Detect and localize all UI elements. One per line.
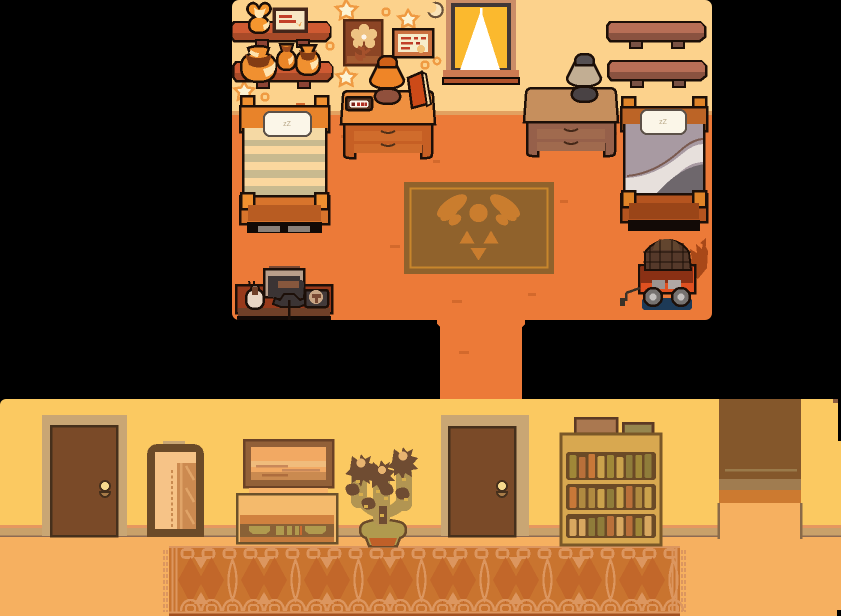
svg-text:zZ: zZ xyxy=(659,119,668,126)
svg-text:zZ: zZ xyxy=(283,121,292,128)
